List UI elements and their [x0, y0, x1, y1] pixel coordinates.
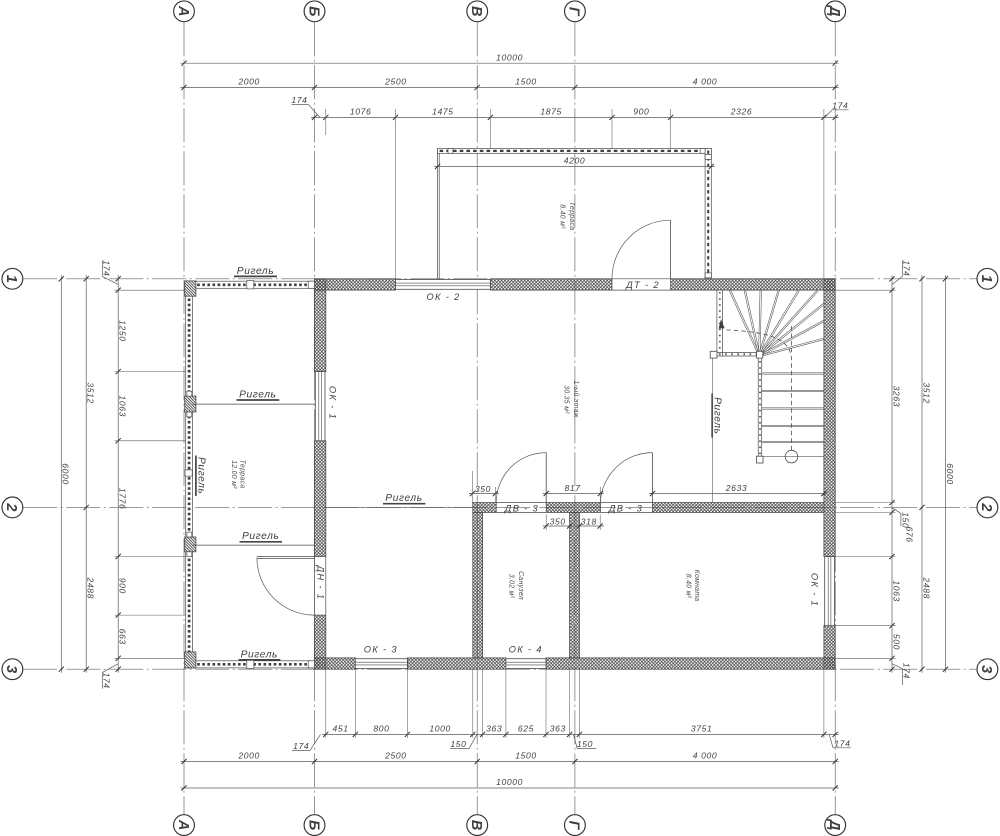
svg-text:174: 174: [293, 741, 309, 751]
svg-text:900: 900: [633, 107, 649, 117]
svg-text:1000: 1000: [429, 724, 451, 734]
svg-text:1475: 1475: [432, 107, 454, 117]
svg-text:625: 625: [518, 724, 534, 734]
svg-text:Ригель: Ригель: [712, 397, 723, 434]
svg-text:363: 363: [550, 724, 566, 734]
svg-text:1-ый этаж: 1-ый этаж: [572, 380, 580, 417]
svg-text:ОК - 2: ОК - 2: [426, 291, 460, 302]
svg-text:Терраса: Терраса: [568, 202, 575, 231]
svg-text:Ригель: Ригель: [385, 493, 422, 504]
svg-text:ДН - 1: ДН - 1: [316, 565, 326, 601]
svg-text:Санузел: Санузел: [517, 571, 524, 600]
svg-text:3512: 3512: [921, 382, 931, 404]
svg-text:500: 500: [891, 634, 901, 650]
svg-text:4 000: 4 000: [693, 77, 718, 87]
svg-text:3512: 3512: [86, 382, 96, 404]
svg-text:350: 350: [550, 516, 566, 526]
svg-text:150: 150: [450, 739, 466, 749]
svg-text:ОК - 4: ОК - 4: [509, 643, 543, 654]
svg-text:1500: 1500: [515, 751, 537, 761]
svg-text:174: 174: [834, 738, 850, 748]
svg-text:1875: 1875: [540, 107, 562, 117]
svg-text:3.02 м²: 3.02 м²: [508, 574, 515, 599]
svg-text:Г: Г: [566, 7, 582, 17]
svg-text:Комната: Комната: [693, 570, 700, 602]
svg-text:1063: 1063: [891, 580, 901, 602]
svg-text:900: 900: [118, 578, 128, 594]
svg-text:150: 150: [577, 739, 593, 749]
svg-text:Б: Б: [305, 820, 321, 830]
svg-text:3751: 3751: [691, 724, 713, 734]
svg-text:Г: Г: [566, 821, 582, 831]
svg-text:В: В: [468, 820, 484, 830]
svg-text:ДВ - 3: ДВ - 3: [504, 502, 539, 513]
svg-text:150: 150: [900, 512, 910, 528]
svg-text:ОК - 3: ОК - 3: [364, 643, 398, 654]
svg-text:2: 2: [978, 502, 994, 511]
svg-text:Б: Б: [305, 6, 321, 16]
svg-text:3263: 3263: [891, 386, 901, 408]
svg-text:А: А: [175, 819, 191, 830]
svg-text:363: 363: [486, 724, 502, 734]
svg-text:1500: 1500: [515, 77, 537, 87]
svg-text:174: 174: [832, 100, 848, 110]
svg-text:174: 174: [102, 260, 112, 276]
svg-text:174: 174: [291, 95, 307, 105]
svg-text:174: 174: [902, 663, 912, 679]
svg-text:Ригель: Ригель: [239, 389, 276, 400]
svg-text:10000: 10000: [496, 52, 523, 62]
svg-text:451: 451: [333, 724, 349, 734]
svg-text:2326: 2326: [730, 107, 753, 117]
svg-text:1063: 1063: [118, 395, 128, 417]
svg-text:676: 676: [905, 527, 915, 543]
svg-text:817: 817: [565, 483, 582, 493]
svg-text:174: 174: [102, 673, 112, 689]
svg-text:2488: 2488: [921, 577, 931, 600]
svg-text:8.40 м²: 8.40 м²: [685, 574, 692, 599]
svg-text:ОК - 1: ОК - 1: [327, 386, 338, 420]
svg-text:800: 800: [373, 724, 389, 734]
svg-text:4200: 4200: [564, 156, 586, 166]
svg-text:6000: 6000: [945, 463, 955, 485]
svg-text:174: 174: [902, 260, 912, 276]
svg-text:Ригель: Ригель: [195, 457, 206, 494]
svg-text:10000: 10000: [496, 777, 523, 787]
svg-text:1076: 1076: [350, 107, 372, 117]
svg-text:2500: 2500: [384, 77, 407, 87]
svg-text:Ригель: Ригель: [241, 649, 278, 660]
svg-text:Ригель: Ригель: [237, 266, 274, 277]
svg-text:2000: 2000: [237, 751, 260, 761]
svg-text:2633: 2633: [725, 483, 748, 493]
svg-text:ДТ - 2: ДТ - 2: [625, 279, 660, 290]
svg-text:1: 1: [3, 275, 19, 283]
svg-text:1250: 1250: [118, 320, 128, 342]
svg-text:8.40 м²: 8.40 м²: [559, 204, 566, 229]
svg-text:350: 350: [475, 484, 491, 494]
svg-text:3: 3: [978, 665, 994, 673]
svg-text:2: 2: [3, 502, 19, 511]
svg-text:Ригель: Ригель: [242, 531, 279, 542]
svg-text:6000: 6000: [61, 463, 71, 485]
svg-text:1: 1: [978, 275, 994, 283]
svg-text:2488: 2488: [86, 577, 96, 600]
svg-text:Терраса: Терраса: [239, 460, 246, 489]
svg-text:318: 318: [581, 516, 597, 526]
svg-text:1776: 1776: [118, 488, 128, 510]
svg-text:4 000: 4 000: [693, 751, 718, 761]
svg-text:2500: 2500: [384, 751, 407, 761]
svg-text:ДВ - 3: ДВ - 3: [608, 502, 643, 513]
svg-text:Д: Д: [826, 4, 842, 17]
svg-text:30.35 м²: 30.35 м²: [562, 385, 569, 414]
svg-text:Д: Д: [826, 818, 842, 831]
svg-text:2000: 2000: [237, 77, 260, 87]
svg-text:А: А: [175, 5, 191, 16]
svg-text:12.00 м²: 12.00 м²: [230, 460, 237, 489]
svg-text:В: В: [468, 6, 484, 16]
svg-text:663: 663: [118, 629, 128, 645]
svg-text:3: 3: [3, 665, 19, 673]
svg-text:ОК - 1: ОК - 1: [810, 573, 821, 607]
